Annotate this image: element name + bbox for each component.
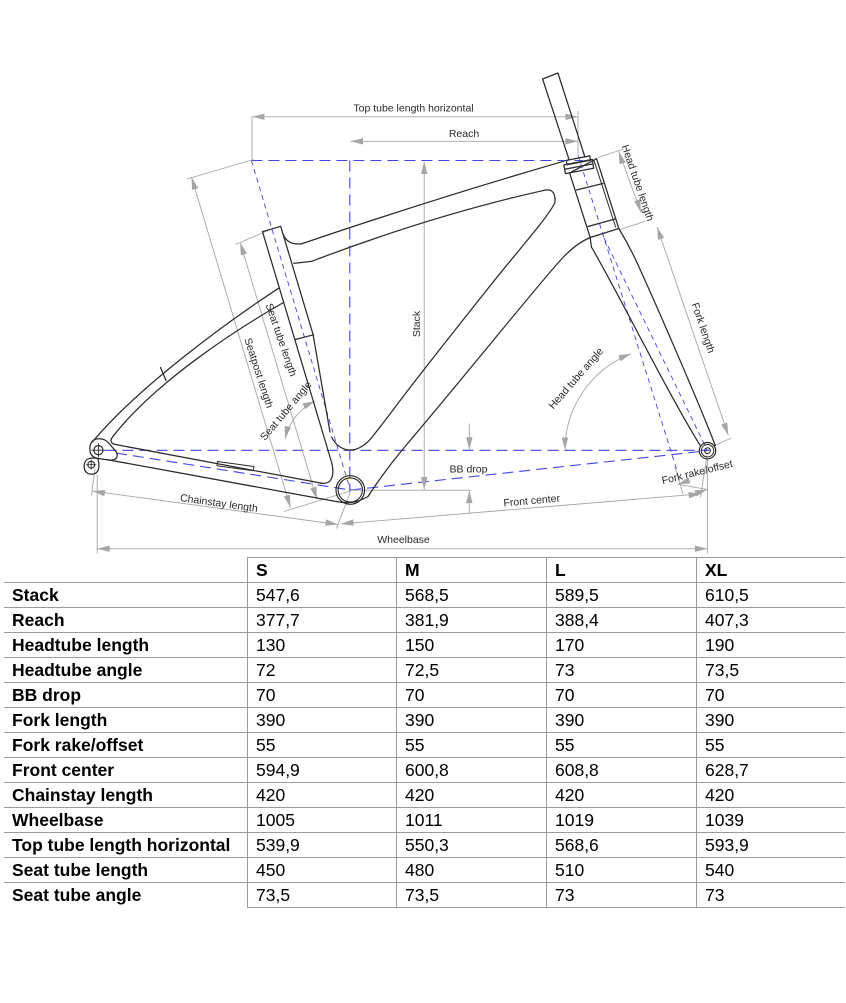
svg-text:Stack: Stack <box>411 310 423 337</box>
svg-text:Fork length: Fork length <box>689 301 717 355</box>
svg-text:Reach: Reach <box>449 128 480 140</box>
svg-text:Front center: Front center <box>503 493 561 510</box>
svg-text:Chainstay length: Chainstay length <box>179 492 258 515</box>
svg-text:Head tube length: Head tube length <box>619 143 656 223</box>
svg-text:Wheelbase: Wheelbase <box>377 534 430 546</box>
svg-text:BB drop: BB drop <box>450 464 488 476</box>
svg-text:Fork rake/offset: Fork rake/offset <box>661 458 735 487</box>
svg-text:Top tube length horizontal: Top tube length horizontal <box>353 103 473 115</box>
svg-text:Seat tube length: Seat tube length <box>263 302 299 378</box>
svg-text:Head tube angle: Head tube angle <box>546 345 606 411</box>
